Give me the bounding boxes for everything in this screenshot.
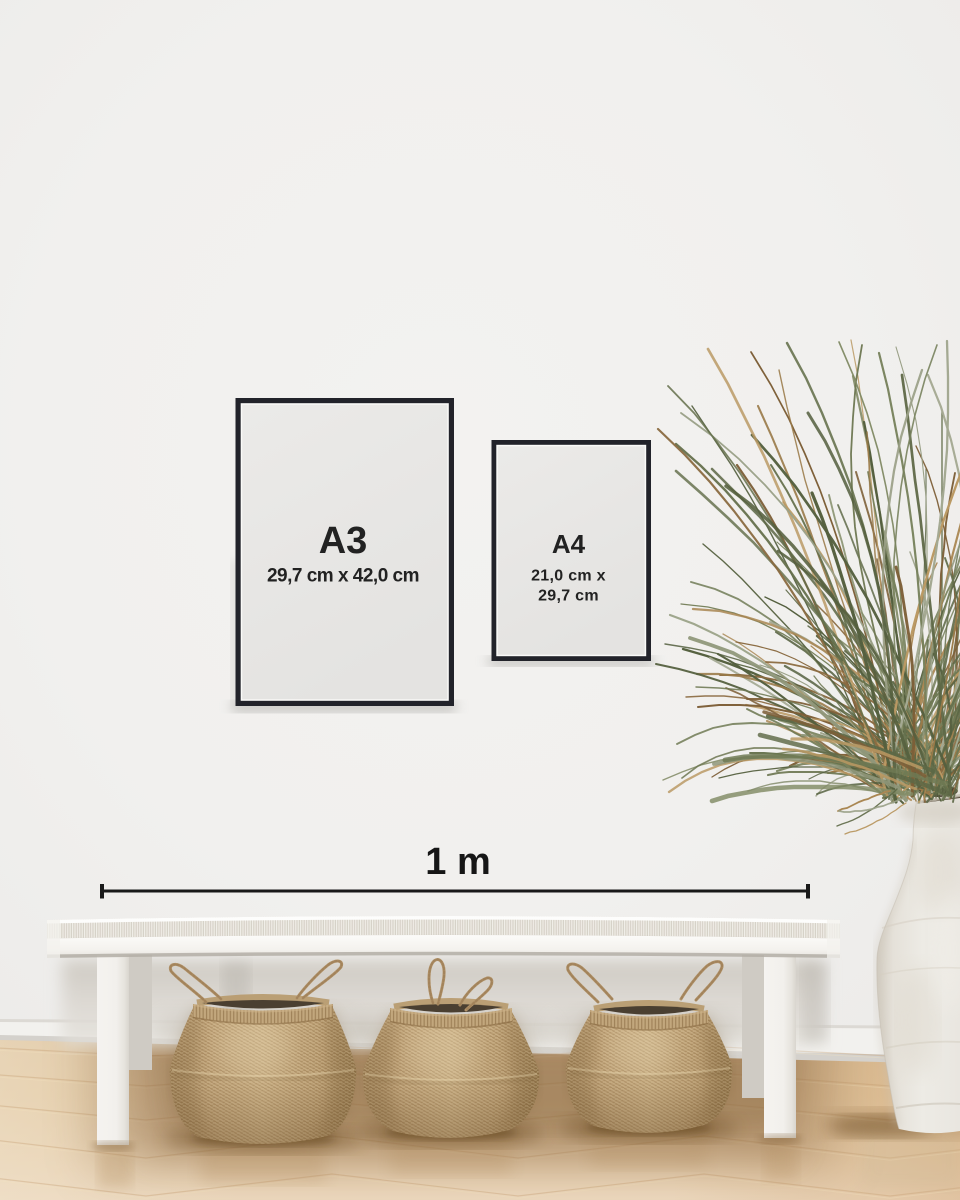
svg-text:21,0 cm x: 21,0 cm x (531, 568, 606, 585)
svg-text:1 m: 1 m (425, 841, 490, 883)
svg-text:29,7 cm x 42,0 cm: 29,7 cm x 42,0 cm (267, 566, 419, 587)
svg-text:A3: A3 (319, 520, 368, 562)
svg-text:29,7 cm: 29,7 cm (538, 588, 599, 605)
svg-text:A4: A4 (552, 529, 586, 559)
